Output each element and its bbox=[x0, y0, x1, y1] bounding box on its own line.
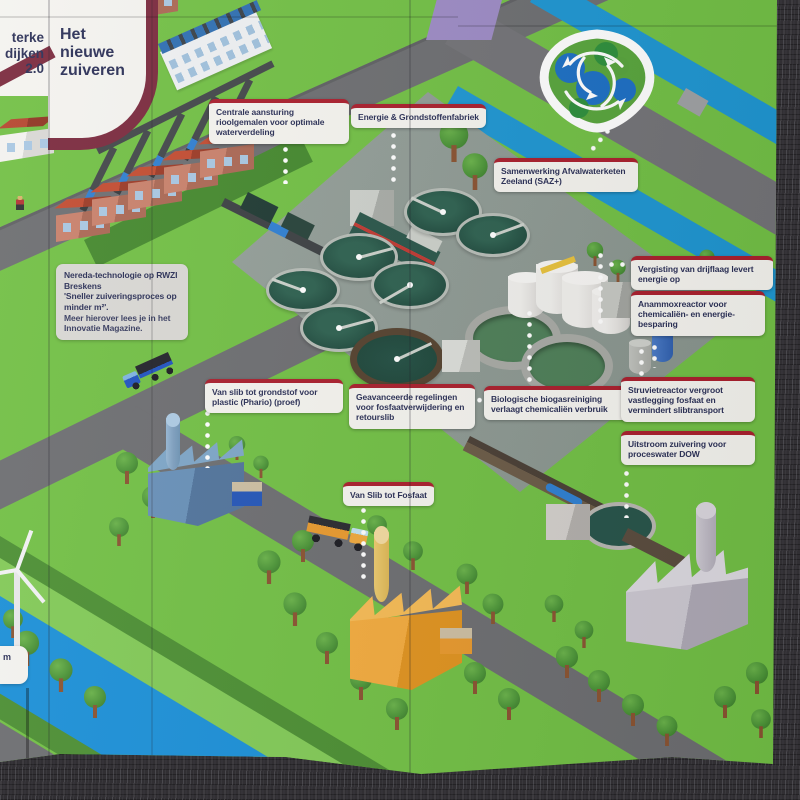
dotted-connector bbox=[205, 408, 210, 468]
tree-icon bbox=[84, 686, 106, 718]
factory-chimney bbox=[696, 508, 716, 572]
fragment-line: terke bbox=[0, 30, 44, 46]
storage-bin bbox=[440, 628, 472, 654]
tree-icon bbox=[109, 517, 129, 546]
nereda-body: Meer hierover lees je in het Innovatie M… bbox=[64, 313, 180, 334]
callout-centrale-aansturing: Centrale aansturing rioolgemalen voor op… bbox=[209, 99, 349, 144]
tree-icon bbox=[253, 456, 268, 478]
nereda-quote: 'Sneller zuiveringsproces op minder m²'. bbox=[64, 291, 180, 312]
factory-chimney bbox=[166, 418, 180, 470]
tree-icon bbox=[751, 709, 771, 738]
circular-economy-logo bbox=[534, 24, 660, 138]
tree-icon bbox=[116, 452, 138, 484]
left-title-fragment: terke dijken 2.0 bbox=[0, 30, 44, 77]
fragment-line: dijken bbox=[0, 46, 44, 62]
dotted-connector bbox=[606, 262, 630, 267]
callout-vergisting: Vergisting van drijflaag levert energie … bbox=[631, 256, 773, 290]
dotted-connector bbox=[391, 130, 396, 186]
callout-samenwerking-saz: Samenwerking Afvalwaterketen Zeeland (SA… bbox=[494, 158, 638, 192]
tree-icon bbox=[257, 550, 280, 584]
page-title: Het nieuwe zuiveren bbox=[60, 26, 144, 80]
tree-icon bbox=[283, 592, 306, 626]
nereda-title: Nereda-technologie op RWZI Breskens bbox=[64, 270, 180, 291]
factory-body bbox=[148, 462, 244, 526]
tree-icon bbox=[746, 662, 768, 694]
callout-slib-fosfaat: Van Slib tot Fosfaat bbox=[343, 482, 434, 506]
house-white bbox=[0, 116, 54, 162]
callout-uitstroom-dow: Uitstroom zuivering voor proceswater DOW bbox=[621, 431, 755, 465]
tree-icon bbox=[575, 621, 594, 648]
tree-icon bbox=[545, 595, 564, 622]
cyclist bbox=[16, 196, 24, 210]
turbine-blade bbox=[15, 530, 33, 571]
pump-building bbox=[546, 504, 590, 540]
storage-bin bbox=[232, 482, 262, 506]
tree-icon bbox=[714, 686, 736, 718]
callout-slib-plastic: Van slib tot grondstof voor plastic (Pha… bbox=[205, 379, 343, 413]
tree-icon bbox=[386, 698, 408, 730]
gray-factory bbox=[618, 508, 753, 643]
tree-icon bbox=[483, 594, 504, 624]
tree-icon bbox=[657, 716, 678, 746]
note-nereda: Nereda-technologie op RWZI Breskens 'Sne… bbox=[56, 264, 188, 340]
callout-biologische-biogasreiniging: Biologische biogasreiniging verlaagt che… bbox=[484, 386, 630, 420]
clarifier-tank bbox=[371, 261, 449, 309]
infographic-poster: Het nieuwe zuiveren terke dijken 2.0 bbox=[0, 0, 800, 800]
purple-building bbox=[426, 0, 502, 40]
callout-geavanceerde-regelingen: Geavanceerde regelingen voor fosfaatverw… bbox=[349, 384, 475, 429]
factory-chimney bbox=[374, 532, 389, 602]
tree-icon bbox=[462, 153, 487, 190]
dotted-connector bbox=[652, 342, 657, 368]
dotted-connector bbox=[283, 144, 288, 184]
sludge-tank bbox=[350, 328, 444, 390]
plant-building bbox=[601, 282, 631, 318]
callout-anammoxreactor: Anammoxreactor voor chemicaliën- en ener… bbox=[631, 291, 765, 336]
tree-icon bbox=[588, 670, 610, 702]
dotted-connector bbox=[598, 250, 603, 330]
edge-callout-fragment: m bbox=[0, 646, 28, 684]
tree-icon bbox=[316, 632, 338, 664]
callout-energie-grondstoffenfabriek: Energie & Grondstoffenfabriek bbox=[351, 104, 486, 128]
blue-factory bbox=[148, 404, 248, 532]
tree-icon bbox=[464, 662, 486, 694]
dotted-connector bbox=[361, 505, 366, 583]
callout-struvietreactor: Struvietreactor vergroot vastlegging fos… bbox=[621, 377, 755, 422]
tree-icon bbox=[622, 694, 644, 726]
tree-icon bbox=[556, 646, 578, 678]
plant-building bbox=[442, 340, 480, 372]
dotted-connector bbox=[639, 346, 644, 378]
fragment-line: 2.0 bbox=[0, 61, 44, 77]
clarifier-tank bbox=[456, 213, 530, 257]
dotted-connector bbox=[527, 308, 532, 386]
dotted-connector bbox=[624, 468, 629, 518]
tree-icon bbox=[498, 688, 520, 720]
